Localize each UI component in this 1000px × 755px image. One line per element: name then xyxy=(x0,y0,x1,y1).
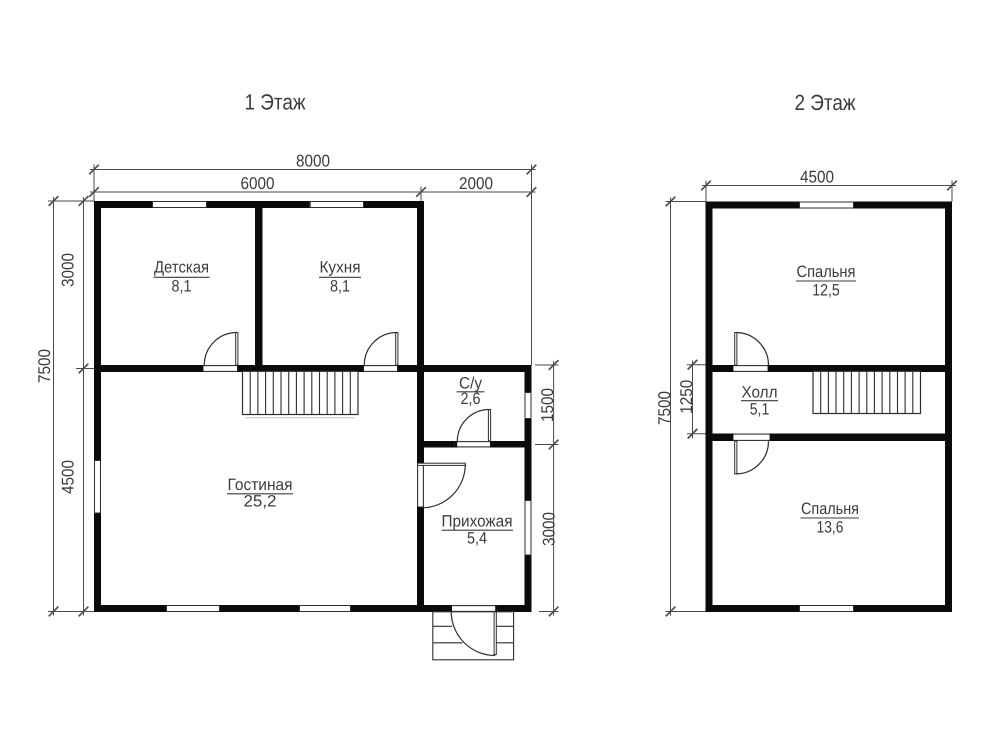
svg-text:7500: 7500 xyxy=(655,391,674,425)
svg-text:12,5: 12,5 xyxy=(812,282,840,300)
svg-text:Холл: Холл xyxy=(742,384,778,402)
svg-text:4500: 4500 xyxy=(800,167,834,186)
svg-text:13,6: 13,6 xyxy=(817,519,844,537)
svg-text:Кухня: Кухня xyxy=(320,259,361,277)
svg-text:Гостиная: Гостиная xyxy=(228,476,293,494)
svg-text:8,1: 8,1 xyxy=(330,278,350,296)
svg-text:Детская: Детская xyxy=(154,259,209,277)
svg-text:25,2: 25,2 xyxy=(244,493,277,511)
svg-text:5,1: 5,1 xyxy=(750,401,770,419)
svg-text:1250: 1250 xyxy=(677,380,696,414)
svg-text:3000: 3000 xyxy=(58,253,77,287)
svg-text:1 Этаж: 1 Этаж xyxy=(245,90,306,115)
svg-text:Спальня: Спальня xyxy=(797,263,856,281)
svg-text:1500: 1500 xyxy=(538,388,557,422)
svg-text:Прихожая: Прихожая xyxy=(442,513,513,531)
svg-text:2000: 2000 xyxy=(459,174,493,193)
svg-text:2,6: 2,6 xyxy=(461,390,481,408)
svg-text:8000: 8000 xyxy=(296,152,330,171)
svg-text:4500: 4500 xyxy=(58,460,77,494)
svg-text:5,4: 5,4 xyxy=(467,530,487,548)
svg-text:2 Этаж: 2 Этаж xyxy=(795,90,856,115)
svg-text:Спальня: Спальня xyxy=(801,500,859,518)
svg-text:7500: 7500 xyxy=(35,349,54,383)
svg-text:6000: 6000 xyxy=(241,174,275,193)
svg-text:8,1: 8,1 xyxy=(172,278,192,296)
svg-text:3000: 3000 xyxy=(540,512,559,546)
